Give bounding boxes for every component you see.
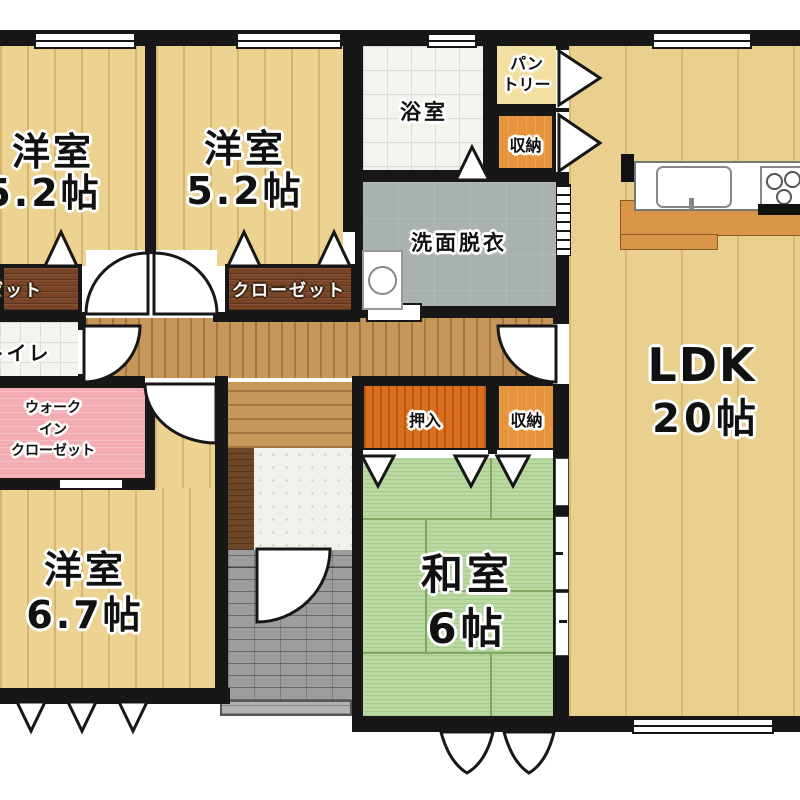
western3-window-mark bbox=[119, 702, 147, 731]
wall bbox=[352, 376, 558, 386]
wic-line1: ウォーク bbox=[25, 400, 81, 416]
wall bbox=[145, 383, 155, 488]
corridor-floor bbox=[86, 318, 556, 378]
washitsu-window-mark bbox=[504, 732, 554, 773]
kitchen-fixture bbox=[621, 154, 634, 182]
ldk-name: LDK bbox=[602, 338, 800, 392]
porch-bottom-step bbox=[220, 700, 352, 716]
closet-center-label: クローゼット bbox=[189, 276, 389, 301]
floor-plan: 洋室 5.2帖 洋室 5.2帖 浴室 パントリー 収納 洗面脱衣 クローゼット … bbox=[0, 0, 800, 800]
oshiire-label: 押入 bbox=[360, 407, 490, 431]
walk-in-closet-label: ウォークインクローゼット bbox=[0, 398, 106, 463]
closet-front-strip bbox=[360, 450, 556, 458]
entrance-step bbox=[228, 448, 254, 550]
wall bbox=[483, 42, 497, 178]
washroom-accordion-door bbox=[556, 184, 571, 256]
room-western1-area: 5.2帖 bbox=[0, 162, 148, 217]
japanese-room-name: 和室 bbox=[367, 541, 567, 602]
window bbox=[632, 718, 774, 734]
window bbox=[236, 32, 342, 49]
storage-upper-label: 収納 bbox=[495, 132, 556, 156]
wall bbox=[215, 376, 228, 704]
wall bbox=[213, 312, 360, 322]
stove-burner bbox=[776, 189, 792, 205]
room-western2-area: 5.2帖 bbox=[140, 160, 350, 215]
stove-burner bbox=[784, 171, 800, 188]
wall bbox=[0, 312, 86, 322]
hall-approach-floor bbox=[228, 382, 352, 448]
wic-line3: クローゼット bbox=[11, 443, 95, 459]
pantry-line1: パン bbox=[510, 54, 543, 73]
pantry-door-opening bbox=[556, 50, 569, 108]
washitsu-sliding-panel bbox=[555, 458, 569, 506]
washitsu-window-mark bbox=[441, 732, 493, 773]
pantry-label: パントリー bbox=[497, 54, 556, 96]
kitchen-counter-base bbox=[620, 234, 718, 250]
tatami-line bbox=[490, 458, 492, 520]
porch-line bbox=[228, 566, 352, 568]
entrance-porch bbox=[228, 550, 352, 700]
window bbox=[34, 32, 136, 49]
faucet bbox=[689, 198, 694, 210]
tatami-line bbox=[363, 518, 553, 520]
pantry-line2: トリー bbox=[502, 75, 550, 94]
kitchen-sink bbox=[656, 166, 732, 208]
bathroom-label: 浴室 bbox=[374, 96, 474, 126]
western3-window-mark bbox=[17, 702, 45, 731]
western3-window-mark bbox=[68, 702, 96, 731]
wall bbox=[0, 688, 230, 704]
corridor-ldk-opening bbox=[553, 324, 569, 384]
washroom-label: 洗面脱衣 bbox=[362, 227, 556, 257]
vestibule-floor bbox=[155, 388, 215, 492]
wic-line2: イン bbox=[39, 422, 67, 438]
wall bbox=[0, 376, 145, 388]
window bbox=[652, 32, 752, 49]
japanese-room-area: 6帖 bbox=[367, 595, 567, 656]
stove-burner bbox=[766, 173, 783, 190]
wall bbox=[497, 104, 556, 112]
closet-left-label: クローゼット bbox=[0, 276, 86, 301]
ldk-area: 20帖 bbox=[606, 386, 800, 444]
kitchen-fixture bbox=[758, 204, 800, 215]
window bbox=[427, 33, 477, 48]
storage-lower-label: 収納 bbox=[495, 407, 558, 431]
wall bbox=[355, 170, 558, 182]
toilet-label: トイレ bbox=[0, 337, 95, 366]
wic-opening bbox=[60, 480, 122, 488]
room-western3-area: 6.7帖 bbox=[0, 584, 195, 639]
storage-door-opening bbox=[556, 112, 569, 172]
tatami-line bbox=[490, 652, 492, 716]
